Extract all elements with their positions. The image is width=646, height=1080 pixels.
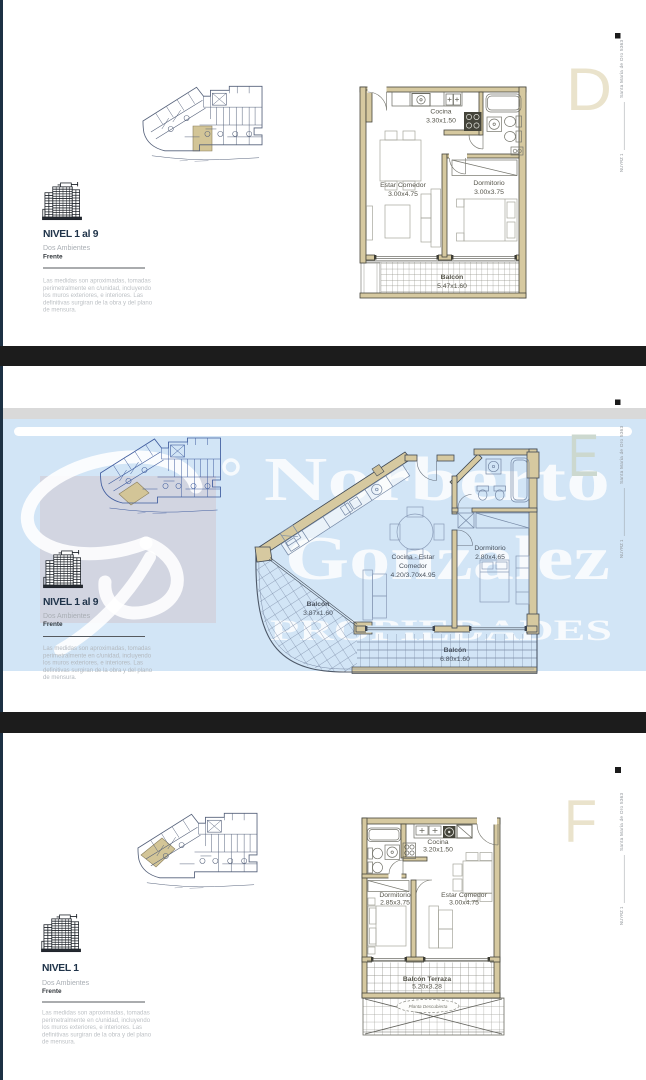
svg-text:Dos Ambientes: Dos Ambientes [43,613,91,620]
svg-text:Las medidas son aproximadas, t: Las medidas son aproximadas, tomadas per… [42,1011,153,1046]
svg-text:Santa Maria de Oro 5363: Santa Maria de Oro 5363 [619,425,624,484]
svg-text:3.00x4.75: 3.00x4.75 [449,900,479,907]
svg-text:Dormitorio: Dormitorio [473,180,505,187]
svg-text:Estar Comedor: Estar Comedor [380,182,426,189]
svg-text:Santa Maria de Oro 5363: Santa Maria de Oro 5363 [619,39,624,98]
svg-text:Balcón: Balcón [307,601,330,608]
svg-text:Dormitorio: Dormitorio [379,892,411,899]
svg-text:Cocina: Cocina [427,839,448,846]
svg-text:Balcón: Balcón [441,274,464,281]
svg-text:Cocina: Cocina [430,109,451,116]
svg-text:Gonzalez: Gonzalez [285,525,610,593]
svg-text:Frente: Frente [42,988,62,995]
svg-text:Cocina - Estar: Cocina - Estar [391,554,435,561]
svg-text:Planta Descubierta: Planta Descubierta [409,1004,448,1009]
svg-text:Frente: Frente [43,254,63,261]
svg-text:Las medidas son aproximadas, t: Las medidas son aproximadas, tomadas per… [43,646,154,681]
svg-text:Comedor: Comedor [399,563,428,570]
svg-text:3.20x1.50: 3.20x1.50 [423,847,453,854]
svg-text:4.20/3.70x4.95: 4.20/3.70x4.95 [391,572,436,579]
svg-text:Estar Comedor: Estar Comedor [441,892,487,899]
svg-text:3.30x1.50: 3.30x1.50 [426,118,456,125]
svg-text:Dos Ambientes: Dos Ambientes [42,980,90,987]
svg-text:NUYRZ 1: NUYRZ 1 [619,539,624,558]
svg-text:NIVEL 1: NIVEL 1 [42,963,79,974]
svg-text:2.85x3.75: 2.85x3.75 [380,900,410,907]
svg-text:Frente: Frente [43,621,63,628]
svg-text:NIVEL 1 al 9: NIVEL 1 al 9 [43,229,99,240]
svg-text:Balcón: Balcón [444,647,467,654]
svg-text:NUYRZ 1: NUYRZ 1 [619,906,624,925]
svg-text:2.80x4.65: 2.80x4.65 [475,554,505,561]
svg-text:5.20x3.28: 5.20x3.28 [412,984,442,991]
svg-text:NIVEL 1 al 9: NIVEL 1 al 9 [43,597,99,608]
svg-text:5.47x1.60: 5.47x1.60 [437,283,467,290]
svg-text:D: D [566,56,612,123]
svg-text:Balcón Terraza: Balcón Terraza [403,976,451,983]
svg-text:F: F [564,788,597,855]
svg-text:E: E [568,422,599,489]
svg-text:Dormitorio: Dormitorio [474,545,506,552]
svg-text:6.80x1.60: 6.80x1.60 [440,656,470,663]
svg-text:NUYRZ 1: NUYRZ 1 [619,153,624,172]
svg-text:3.00x3.75: 3.00x3.75 [474,189,504,196]
svg-text:Santa Maria de Oro 5363: Santa Maria de Oro 5363 [619,792,624,851]
svg-text:Las medidas son aproximadas, t: Las medidas son aproximadas, tomadas per… [43,279,154,314]
svg-text:3.87x1.60: 3.87x1.60 [303,610,333,617]
svg-text:3.00x4.75: 3.00x4.75 [388,191,418,198]
svg-text:Dos Ambientes: Dos Ambientes [43,245,91,252]
